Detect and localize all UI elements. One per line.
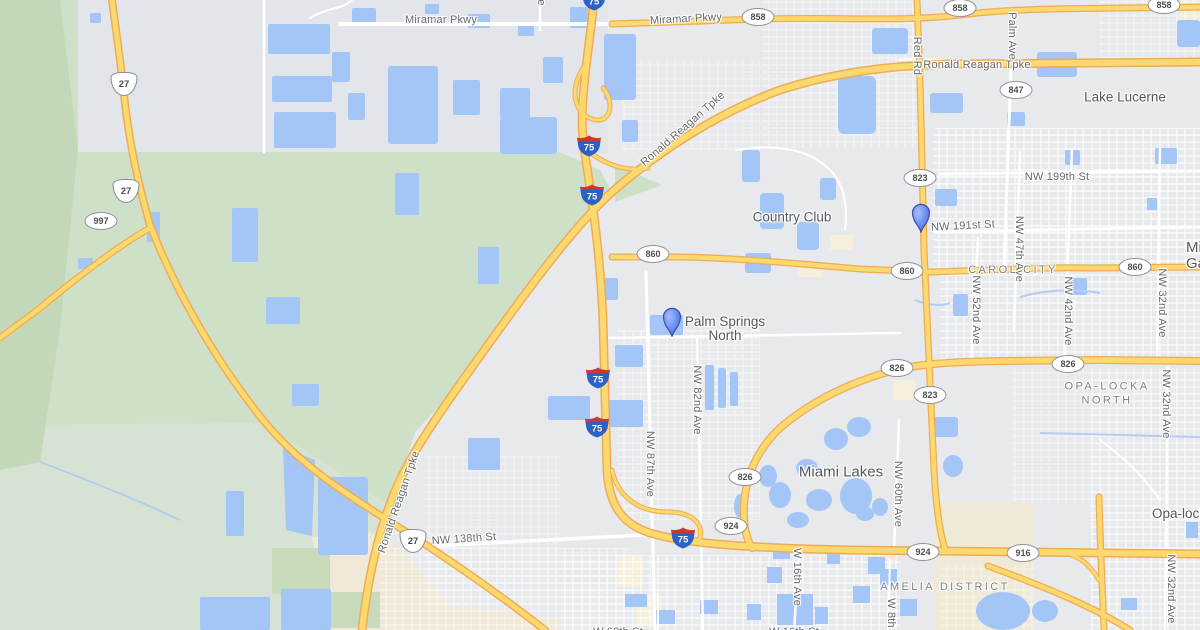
- map-viewport[interactable]: 858 858 858 847 823 823 860 860 860 826 …: [0, 0, 1200, 630]
- map-canvas: [0, 0, 1200, 630]
